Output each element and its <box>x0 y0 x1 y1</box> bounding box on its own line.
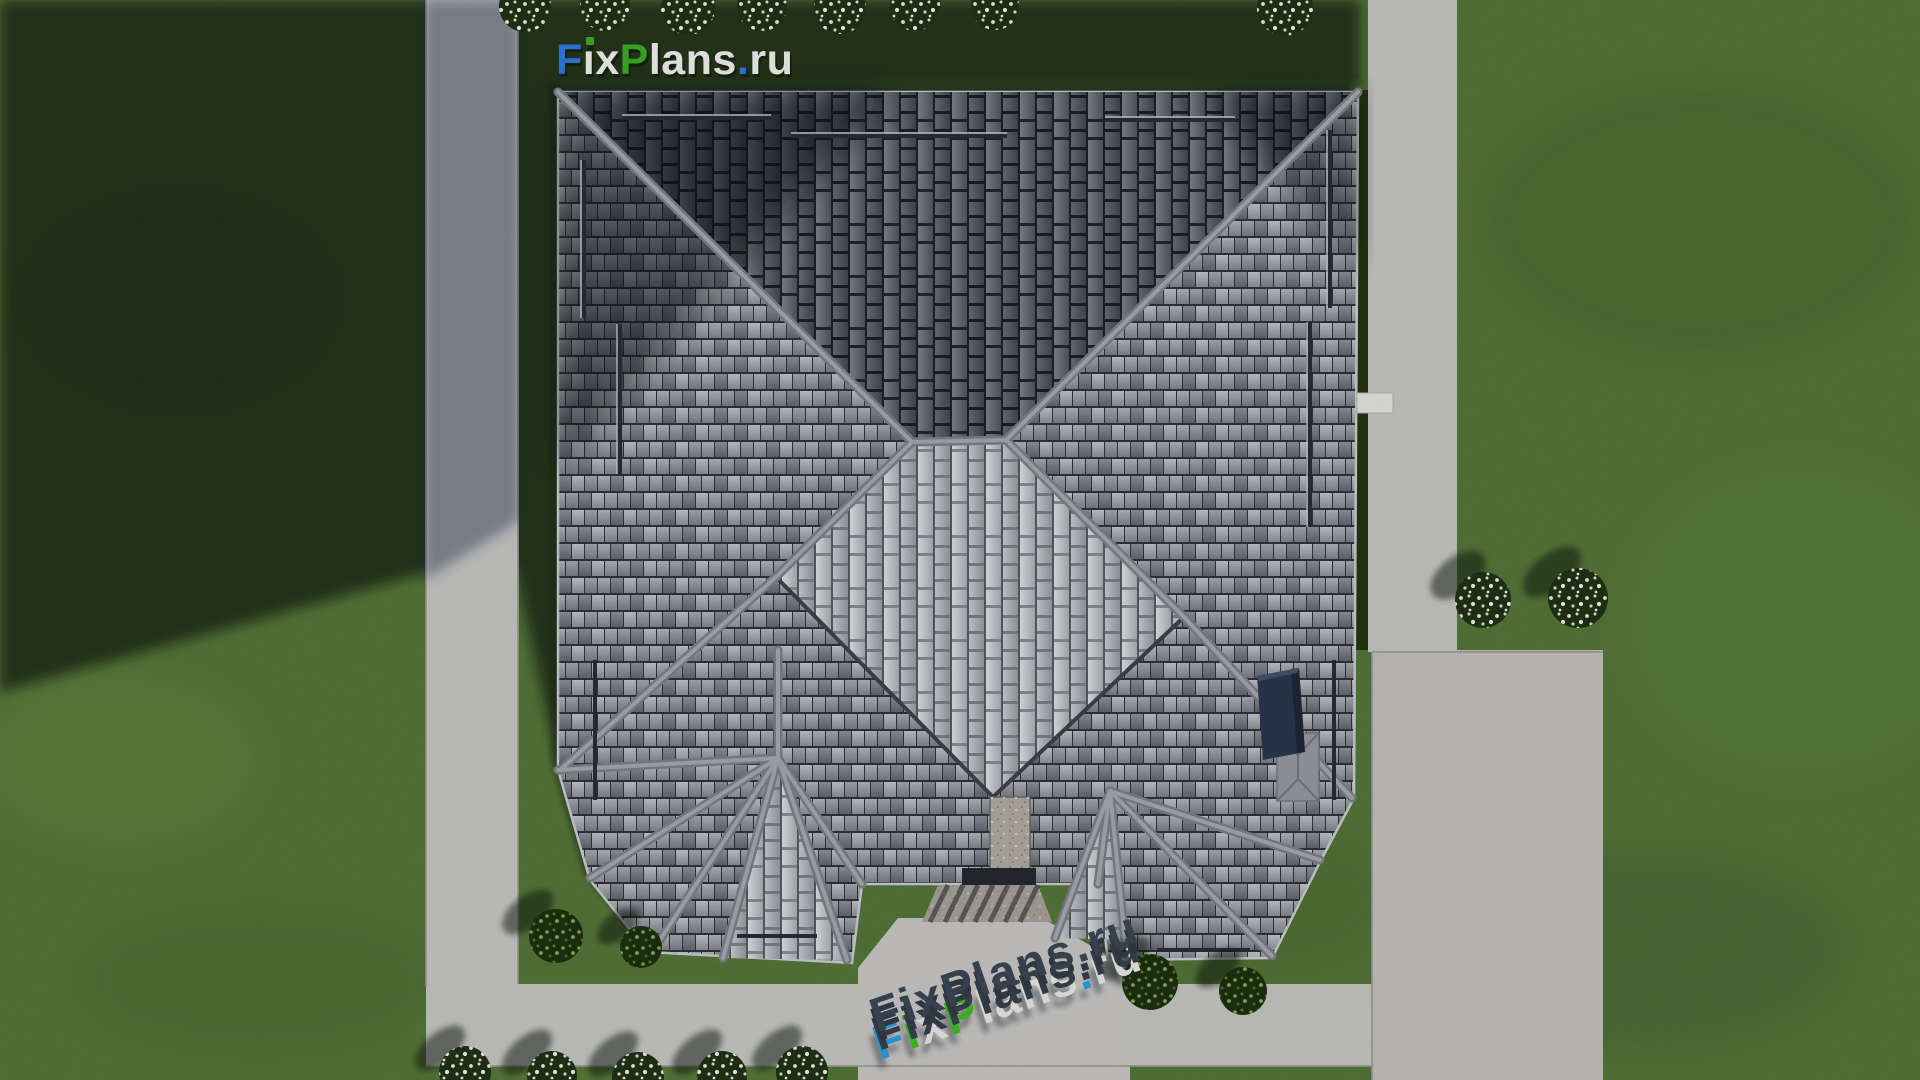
grain-overlay <box>0 0 1920 1080</box>
aerial-house-roof-render: FixPlans.ru FıxPlans.ru FixPlans.ru FixP… <box>0 0 1920 1080</box>
